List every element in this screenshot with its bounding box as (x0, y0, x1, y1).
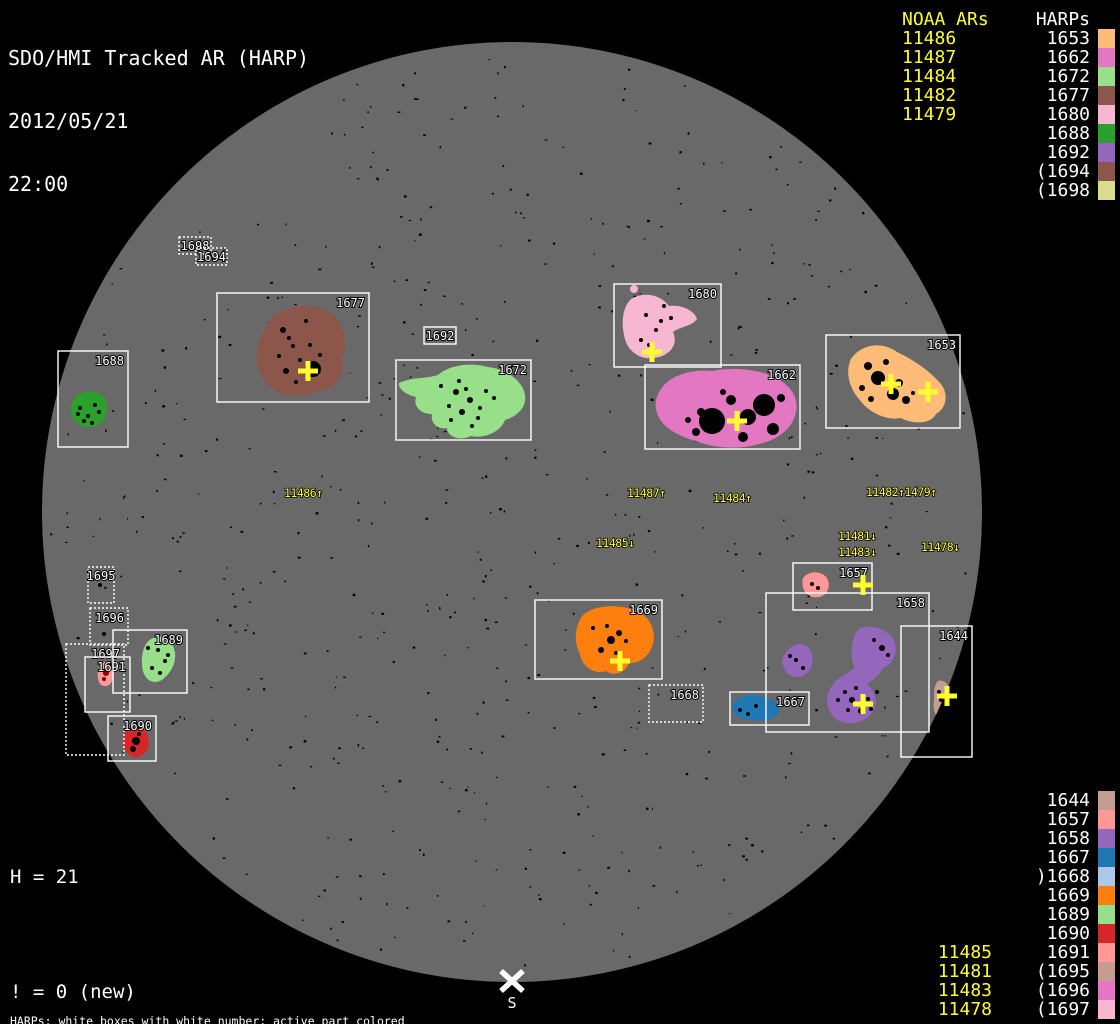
noaa-ar-number (902, 791, 992, 810)
legend-row: 114821677 (902, 86, 1115, 105)
legend-row: 114841672 (902, 67, 1115, 86)
sunspot (720, 389, 726, 395)
noaa-disk-label: 11483↓ (838, 545, 877, 559)
sunspot (82, 419, 86, 423)
harp-color-swatch (1098, 905, 1115, 924)
sunspot (156, 648, 160, 652)
sunspot (78, 406, 82, 410)
harp-number: (1698 (998, 181, 1090, 200)
harp-color-swatch (1098, 1000, 1115, 1019)
harp-color-swatch (1098, 886, 1115, 905)
sunspot (659, 319, 663, 323)
plot-title: SDO/HMI Tracked AR (HARP) (8, 48, 309, 69)
harp-box-label-1697: 1697 (91, 647, 120, 661)
harp-color-swatch (1098, 829, 1115, 848)
sunspot (308, 343, 312, 347)
sunspot (459, 409, 465, 415)
plot-date: 2012/05/21 (8, 111, 309, 132)
sunspot (439, 384, 443, 388)
sunspot (669, 316, 673, 320)
sunspot (447, 404, 451, 408)
sunspot (886, 653, 890, 657)
noaa-ars-header: NOAA ARs (902, 10, 998, 29)
harp-box-label-1692: 1692 (426, 329, 455, 343)
legend-row: 1690 (902, 924, 1115, 943)
noaa-ar-number (902, 181, 998, 200)
sunspot (836, 698, 840, 702)
noaa-disk-label: 11481↓ (838, 529, 877, 543)
sunspot (98, 583, 102, 587)
sunspot (616, 630, 622, 636)
sunspot (662, 304, 666, 308)
footnotes: HARPs: white boxes with white number; ac… (10, 989, 453, 1024)
sunspot (746, 712, 750, 716)
sunspot (76, 412, 80, 416)
noaa-ar-number (902, 143, 998, 162)
sunspot (864, 362, 872, 370)
harp-color-swatch (1098, 981, 1115, 1000)
noaa-ar-number: 11479 (902, 105, 998, 124)
sunspot (859, 385, 865, 391)
harp-count: H = 21 (10, 868, 227, 887)
sunspot (277, 354, 281, 358)
harp-box-label-1662: 1662 (767, 368, 796, 382)
sunspot (767, 423, 779, 435)
sunspot (639, 338, 643, 342)
sunspot (738, 708, 742, 712)
sunspot (726, 395, 736, 405)
harp-color-swatch (1098, 86, 1115, 105)
harp-box-label-1653: 1653 (927, 338, 956, 352)
harp-number: 1657 (992, 810, 1090, 829)
sunspot (102, 632, 106, 636)
harp-number: (1696 (992, 981, 1090, 1000)
legend-row: )1668 (902, 867, 1115, 886)
sunspot (470, 424, 474, 428)
sunspot (605, 624, 609, 628)
sunspot (754, 704, 758, 708)
harp-color-swatch (1098, 962, 1115, 981)
sunspot (624, 639, 628, 643)
noaa-ar-number (902, 124, 998, 143)
sunspot (166, 653, 170, 657)
noaa-ar-number (902, 848, 992, 867)
sunspot (902, 396, 910, 404)
harp-number: 1667 (992, 848, 1090, 867)
sunspot (304, 319, 308, 323)
legend-row: 1644 (902, 791, 1115, 810)
harps-header: HARPs (998, 10, 1090, 29)
sunspot (294, 380, 298, 384)
sunspot (879, 645, 885, 651)
harp-number: 1688 (998, 124, 1090, 143)
harp-number: (1697 (992, 1000, 1090, 1019)
legend-bottom-right: 1644165716581667)16681669168916901148516… (902, 791, 1115, 1019)
harp-number: 1677 (998, 86, 1090, 105)
sunspot (654, 328, 658, 332)
harp-number: 1672 (998, 67, 1090, 86)
legend-row: (1698 (902, 181, 1115, 200)
noaa-ar-number: 11481 (902, 962, 992, 981)
sunspot (777, 394, 785, 402)
sunspot (697, 408, 705, 416)
sunspot (93, 403, 97, 407)
sunspot (846, 708, 850, 712)
legend-row: 1689 (902, 905, 1115, 924)
harp-number: (1694 (998, 162, 1090, 181)
sunspot (868, 396, 874, 402)
footnote-harps: HARPs: white boxes with white number; ac… (10, 1015, 453, 1024)
sunspot (937, 690, 941, 694)
sunspot (843, 690, 847, 694)
harp-box-label-1644: 1644 (939, 629, 968, 643)
legend-row: 1692 (902, 143, 1115, 162)
sunspot (146, 646, 150, 650)
harp-number: 1691 (992, 943, 1090, 962)
noaa-ar-number (902, 886, 992, 905)
sunspot (939, 698, 943, 702)
harp-number: (1695 (992, 962, 1090, 981)
noaa-ar-number: 11485 (902, 943, 992, 962)
sunspot (753, 394, 775, 416)
legend-row: 114851691 (902, 943, 1115, 962)
harp-color-swatch (1098, 29, 1115, 48)
sunspot (457, 379, 461, 383)
harp-number: 1653 (998, 29, 1090, 48)
noaa-ar-number: 11483 (902, 981, 992, 1000)
sunspot (150, 666, 154, 670)
noaa-disk-label: 11482↑1479↑ (866, 485, 937, 499)
noaa-disk-label: 11486↑ (284, 486, 323, 500)
sunspot (453, 389, 459, 395)
harp-color-swatch (1098, 181, 1115, 200)
noaa-ar-number: 11487 (902, 48, 998, 67)
harp-box-label-1668: 1668 (670, 688, 699, 702)
harp-number: 1658 (992, 829, 1090, 848)
harp-tracker-screen: 1698169416771692167216881680166216531695… (0, 0, 1120, 1024)
harp-box-label-1672: 1672 (498, 363, 527, 377)
sunspot (854, 686, 858, 690)
sunspot (598, 647, 604, 653)
harp-box-label-1677: 1677 (336, 296, 365, 310)
noaa-ar-number (902, 810, 992, 829)
noaa-disk-label: 11487↑ (627, 486, 666, 500)
harp-region-1695 (98, 583, 102, 587)
noaa-ar-number (902, 829, 992, 848)
sunspot (866, 697, 870, 701)
noaa-disk-label: 11478↓ (921, 540, 960, 554)
harp-box-label-1691: 1691 (97, 660, 126, 674)
harp-number: )1668 (992, 867, 1090, 886)
sunspot (810, 582, 814, 586)
harp-color-swatch (1098, 124, 1115, 143)
sunspot (738, 432, 748, 442)
noaa-disk-label: 11485↓ (596, 536, 635, 550)
sunspot (816, 586, 820, 590)
sunspot (130, 746, 136, 752)
harp-box-label-1695: 1695 (87, 569, 116, 583)
sunspot (449, 418, 453, 422)
noaa-ar-number (902, 924, 992, 943)
harp-color-swatch (1098, 924, 1115, 943)
harp-box-label-1680: 1680 (688, 287, 717, 301)
sunspot (872, 638, 876, 642)
harp-box-label-1696: 1696 (95, 611, 124, 625)
sunspot (492, 396, 496, 400)
harp-number: 1669 (992, 886, 1090, 905)
sunspot (644, 313, 648, 317)
plot-title-block: SDO/HMI Tracked AR (HARP) 2012/05/21 22:… (8, 6, 309, 237)
legend-row: 1667 (902, 848, 1115, 867)
sunspot (97, 410, 101, 414)
noaa-ar-number: 11484 (902, 67, 998, 86)
legend-row: 1657 (902, 810, 1115, 829)
noaa-disk-label: 11484↑ (713, 491, 752, 505)
south-pole-label: S (507, 994, 516, 1012)
legend-header-row: NOAA ARsHARPs (902, 10, 1115, 29)
sunspot (298, 358, 302, 362)
legend-top-right: NOAA ARsHARPs114861653114871662114841672… (902, 10, 1115, 200)
stats-gap (10, 925, 227, 945)
sunspot (869, 707, 873, 711)
harp-region-1696 (102, 632, 106, 636)
noaa-ar-number: 11478 (902, 1000, 992, 1019)
sunspot (102, 677, 106, 681)
sunspot (476, 416, 480, 420)
harp-box-label-1688: 1688 (95, 354, 124, 368)
sunspot (794, 658, 798, 662)
harp-box-label-1667: 1667 (776, 695, 805, 709)
sunspot (280, 327, 286, 333)
legend-row: 114861653 (902, 29, 1115, 48)
sunspot (801, 666, 805, 670)
harp-number: 1690 (992, 924, 1090, 943)
sunspot (614, 651, 618, 655)
sunspot (591, 626, 595, 630)
harp-color-swatch (1098, 143, 1115, 162)
swatch-spacer (1098, 10, 1115, 29)
sunspot (464, 387, 468, 391)
sunspot (607, 636, 615, 644)
legend-row: 1669 (902, 886, 1115, 905)
legend-row: 114791680 (902, 105, 1115, 124)
harp-color-swatch (1098, 105, 1115, 124)
harp-color-swatch (1098, 162, 1115, 181)
harp-color-swatch (1098, 848, 1115, 867)
harp-number: 1662 (998, 48, 1090, 67)
noaa-ar-number (902, 867, 992, 886)
sunspot (788, 654, 792, 658)
sunspot (692, 428, 700, 436)
harp-color-swatch (1098, 867, 1115, 886)
sunspot (318, 353, 322, 357)
sunspot (875, 690, 879, 694)
sunspot (484, 389, 488, 393)
noaa-ar-number: 11486 (902, 29, 998, 48)
harp-number: 1644 (992, 791, 1090, 810)
harp-color-swatch (1098, 810, 1115, 829)
sunspot (911, 391, 915, 395)
harp-region-1688 (71, 392, 107, 427)
harp-number: 1689 (992, 905, 1090, 924)
sunspot (685, 417, 691, 423)
legend-row: (1694 (902, 162, 1115, 181)
harp-color-swatch (1098, 67, 1115, 86)
noaa-ar-number (902, 162, 998, 181)
harp-color-swatch (1098, 48, 1115, 67)
legend-row: 114871662 (902, 48, 1115, 67)
legend-row: 1688 (902, 124, 1115, 143)
sunspot (883, 359, 889, 365)
harp-dot-1680 (630, 285, 638, 293)
sunspot (132, 737, 140, 745)
sunspot (478, 406, 482, 410)
sunspot (291, 344, 295, 348)
harp-number: 1680 (998, 105, 1090, 124)
harp-box-label-1669: 1669 (629, 603, 658, 617)
noaa-ar-number: 11482 (902, 86, 998, 105)
legend-row: 11478(1697 (902, 1000, 1115, 1019)
harp-color-swatch (1098, 791, 1115, 810)
harp-box-label-1690: 1690 (123, 719, 152, 733)
legend-row: 11481(1695 (902, 962, 1115, 981)
harp-blob-1688 (71, 392, 107, 427)
sunspot (942, 706, 946, 710)
harp-box-label-1658: 1658 (896, 596, 925, 610)
sunspot (158, 671, 162, 675)
sunspot (86, 414, 90, 418)
legend-row: 1658 (902, 829, 1115, 848)
sunspot (287, 336, 291, 340)
harp-box-label-1689: 1689 (154, 633, 183, 647)
legend-row: 11483(1696 (902, 981, 1115, 1000)
sunspot (90, 421, 94, 425)
harp-box-label-1694: 1694 (197, 250, 226, 264)
noaa-ar-number (902, 905, 992, 924)
sunspot (163, 659, 167, 663)
plot-time: 22:00 (8, 174, 309, 195)
harp-number: 1692 (998, 143, 1090, 162)
sunspot (283, 368, 289, 374)
harp-color-swatch (1098, 943, 1115, 962)
sunspot (467, 397, 473, 403)
